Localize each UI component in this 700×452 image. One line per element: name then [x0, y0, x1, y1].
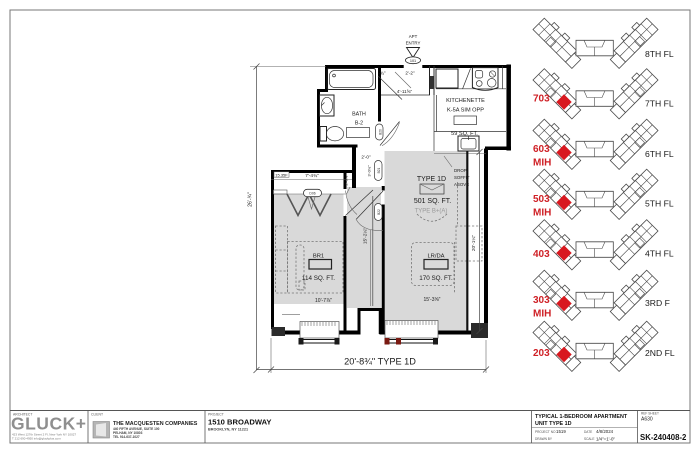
svg-text:503: 503 — [533, 194, 550, 205]
svg-text:DATE: DATE — [584, 430, 592, 434]
svg-text:MIH: MIH — [533, 208, 551, 219]
svg-text:BROOKLYN, NY 11221: BROOKLYN, NY 11221 — [208, 428, 248, 432]
svg-text:BR1: BR1 — [313, 254, 324, 260]
svg-text:170 SQ. FT.: 170 SQ. FT. — [419, 275, 453, 282]
svg-text:SCALE: SCALE — [584, 437, 594, 441]
svg-text:303: 303 — [533, 295, 550, 306]
svg-text:403: 403 — [533, 249, 550, 260]
svg-text:15.35F: 15.35F — [275, 172, 288, 177]
svg-text:5TH FL: 5TH FL — [645, 199, 674, 209]
svg-text:26'-¾": 26'-¾" — [248, 192, 254, 207]
svg-text:CLIENT: CLIENT — [91, 413, 103, 417]
svg-text:2'-2": 2'-2" — [405, 71, 415, 76]
svg-text:SK-240408-2: SK-240408-2 — [640, 433, 687, 442]
svg-text:3RD F: 3RD F — [645, 298, 670, 308]
svg-text:TYPE B+(A): TYPE B+(A) — [415, 209, 448, 215]
svg-text:MIH: MIH — [533, 158, 551, 169]
svg-text:7'-4¾": 7'-4¾" — [305, 173, 319, 179]
svg-text:101: 101 — [410, 59, 416, 63]
svg-text:1510 BROADWAY: 1510 BROADWAY — [208, 418, 271, 427]
svg-text:MIH: MIH — [533, 309, 551, 320]
svg-text:2'-0": 2'-0" — [361, 155, 371, 160]
svg-text:GLUCK+: GLUCK+ — [11, 414, 86, 434]
svg-text:7TH FL: 7TH FL — [645, 99, 674, 109]
svg-text:20'-1¼": 20'-1¼" — [471, 235, 477, 252]
svg-text:1/4"=1'-0": 1/4"=1'-0" — [596, 436, 615, 441]
svg-text:T 212 690 4950 info@gluckplu: T 212 690 4950 info@gluckplus.com — [12, 437, 61, 441]
svg-text:PROJECT: PROJECT — [208, 413, 224, 417]
svg-text:2ND FL: 2ND FL — [645, 348, 675, 358]
svg-text:DRAWN BY: DRAWN BY — [535, 437, 553, 441]
svg-text:15'-3⅝": 15'-3⅝" — [424, 297, 441, 303]
svg-text:114 SQ. FT.: 114 SQ. FT. — [302, 275, 335, 282]
svg-text:B20: B20 — [379, 129, 383, 135]
svg-text:TYPICAL 1-BEDROOM APARTMENT: TYPICAL 1-BEDROOM APARTMENT — [535, 414, 628, 420]
svg-text:BATH: BATH — [352, 112, 366, 118]
svg-text:15'-2¼": 15'-2¼" — [363, 228, 369, 245]
svg-text:D06: D06 — [309, 192, 315, 196]
svg-text:4'-11⅝": 4'-11⅝" — [397, 89, 413, 94]
svg-text:ENTRY: ENTRY — [406, 41, 421, 46]
svg-text:K-5A SIM OPP: K-5A SIM OPP — [447, 108, 484, 114]
svg-text:3'-0¾": 3'-0¾" — [367, 165, 372, 177]
svg-text:20'-8¾" TYPE 1D: 20'-8¾" TYPE 1D — [344, 357, 416, 367]
svg-text:8TH FL: 8TH FL — [645, 49, 674, 59]
svg-text:KITCHENETTE: KITCHENETTE — [446, 98, 485, 104]
svg-text:B-2: B-2 — [355, 121, 363, 127]
svg-text:B21: B21 — [377, 167, 381, 173]
svg-text:-¾": -¾" — [379, 71, 386, 76]
svg-text:A630: A630 — [641, 417, 653, 423]
svg-text:703: 703 — [533, 94, 550, 105]
svg-text:TYPE 1D: TYPE 1D — [417, 176, 446, 183]
svg-text:4TH FL: 4TH FL — [645, 249, 674, 259]
svg-text:603: 603 — [533, 144, 550, 155]
svg-text:DROP: DROP — [454, 168, 467, 173]
svg-text:10'-7⅞": 10'-7⅞" — [315, 298, 332, 304]
svg-text:TEL 914-637-1027: TEL 914-637-1027 — [113, 435, 140, 439]
svg-text:203: 203 — [533, 348, 550, 359]
svg-text:APT: APT — [409, 34, 418, 39]
svg-text:UNIT TYPE 1D: UNIT TYPE 1D — [535, 421, 572, 427]
svg-text:B22: B22 — [377, 209, 381, 215]
svg-text:6TH FL: 6TH FL — [645, 149, 674, 159]
svg-text:2'-0¾": 2'-0¾" — [344, 174, 349, 186]
svg-text:1519: 1519 — [556, 429, 566, 434]
svg-text:4/8/2024: 4/8/2024 — [596, 429, 614, 434]
svg-text:501 SQ. FT.: 501 SQ. FT. — [414, 198, 451, 205]
svg-text:LR/DA: LR/DA — [427, 254, 444, 260]
svg-text:PROJECT NO: PROJECT NO — [535, 430, 556, 434]
svg-text:REF SHEET: REF SHEET — [641, 412, 659, 416]
